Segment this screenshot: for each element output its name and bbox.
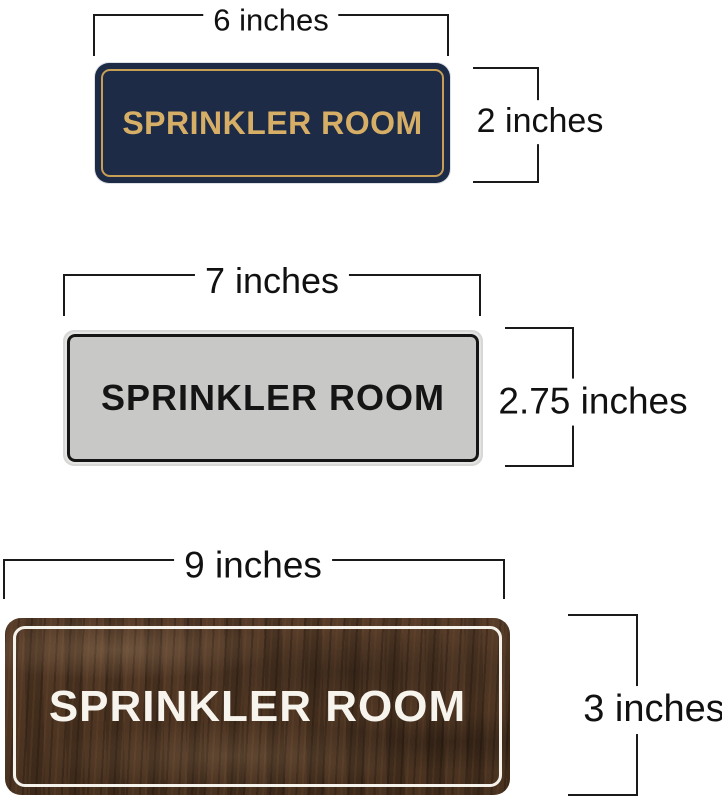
- height-dimension-tick-bottom-3: [568, 794, 638, 796]
- height-dimension-tick-top-2: [505, 327, 574, 329]
- height-dimension-tick-bottom-1: [473, 181, 539, 183]
- sign-navy-gold-border: SPRINKLER ROOM: [101, 69, 444, 177]
- width-dimension-tick-right-3: [503, 559, 505, 599]
- width-dimension-tick-left-1: [93, 14, 95, 56]
- height-dimension-tick-top-3: [568, 614, 638, 616]
- height-dimension-label-2: 2.75 inches: [490, 379, 695, 426]
- width-dimension-tick-right-2: [479, 274, 481, 316]
- sign-silver-black-text: SPRINKLER ROOM: [101, 377, 445, 419]
- sign-silver-black: SPRINKLER ROOM: [63, 330, 483, 466]
- sign-silver-black-border: SPRINKLER ROOM: [67, 334, 479, 462]
- height-dimension-label-1: 2 inches: [469, 100, 612, 144]
- height-dimension-tick-top-1: [473, 67, 539, 69]
- width-dimension-label-3: 9 inches: [174, 545, 332, 588]
- sign-walnut-white: SPRINKLER ROOM: [5, 618, 510, 795]
- width-dimension-tick-left-2: [63, 274, 65, 316]
- sign-navy-gold-text: SPRINKLER ROOM: [122, 105, 422, 142]
- width-dimension-tick-left-3: [3, 559, 5, 599]
- width-dimension-label-2: 7 inches: [195, 260, 349, 302]
- height-dimension-tick-bottom-2: [505, 465, 574, 467]
- sign-walnut-white-border: SPRINKLER ROOM: [13, 626, 502, 787]
- width-dimension-label-1: 6 inches: [203, 3, 338, 40]
- width-dimension-tick-right-1: [447, 14, 449, 56]
- height-dimension-label-3: 3 inches: [575, 686, 722, 734]
- sign-dimensions-image: 6 inches 2 inches SPRINKLER ROOM 7 inche…: [0, 0, 722, 805]
- sign-navy-gold: SPRINKLER ROOM: [95, 63, 450, 183]
- sign-walnut-white-text: SPRINKLER ROOM: [49, 682, 466, 732]
